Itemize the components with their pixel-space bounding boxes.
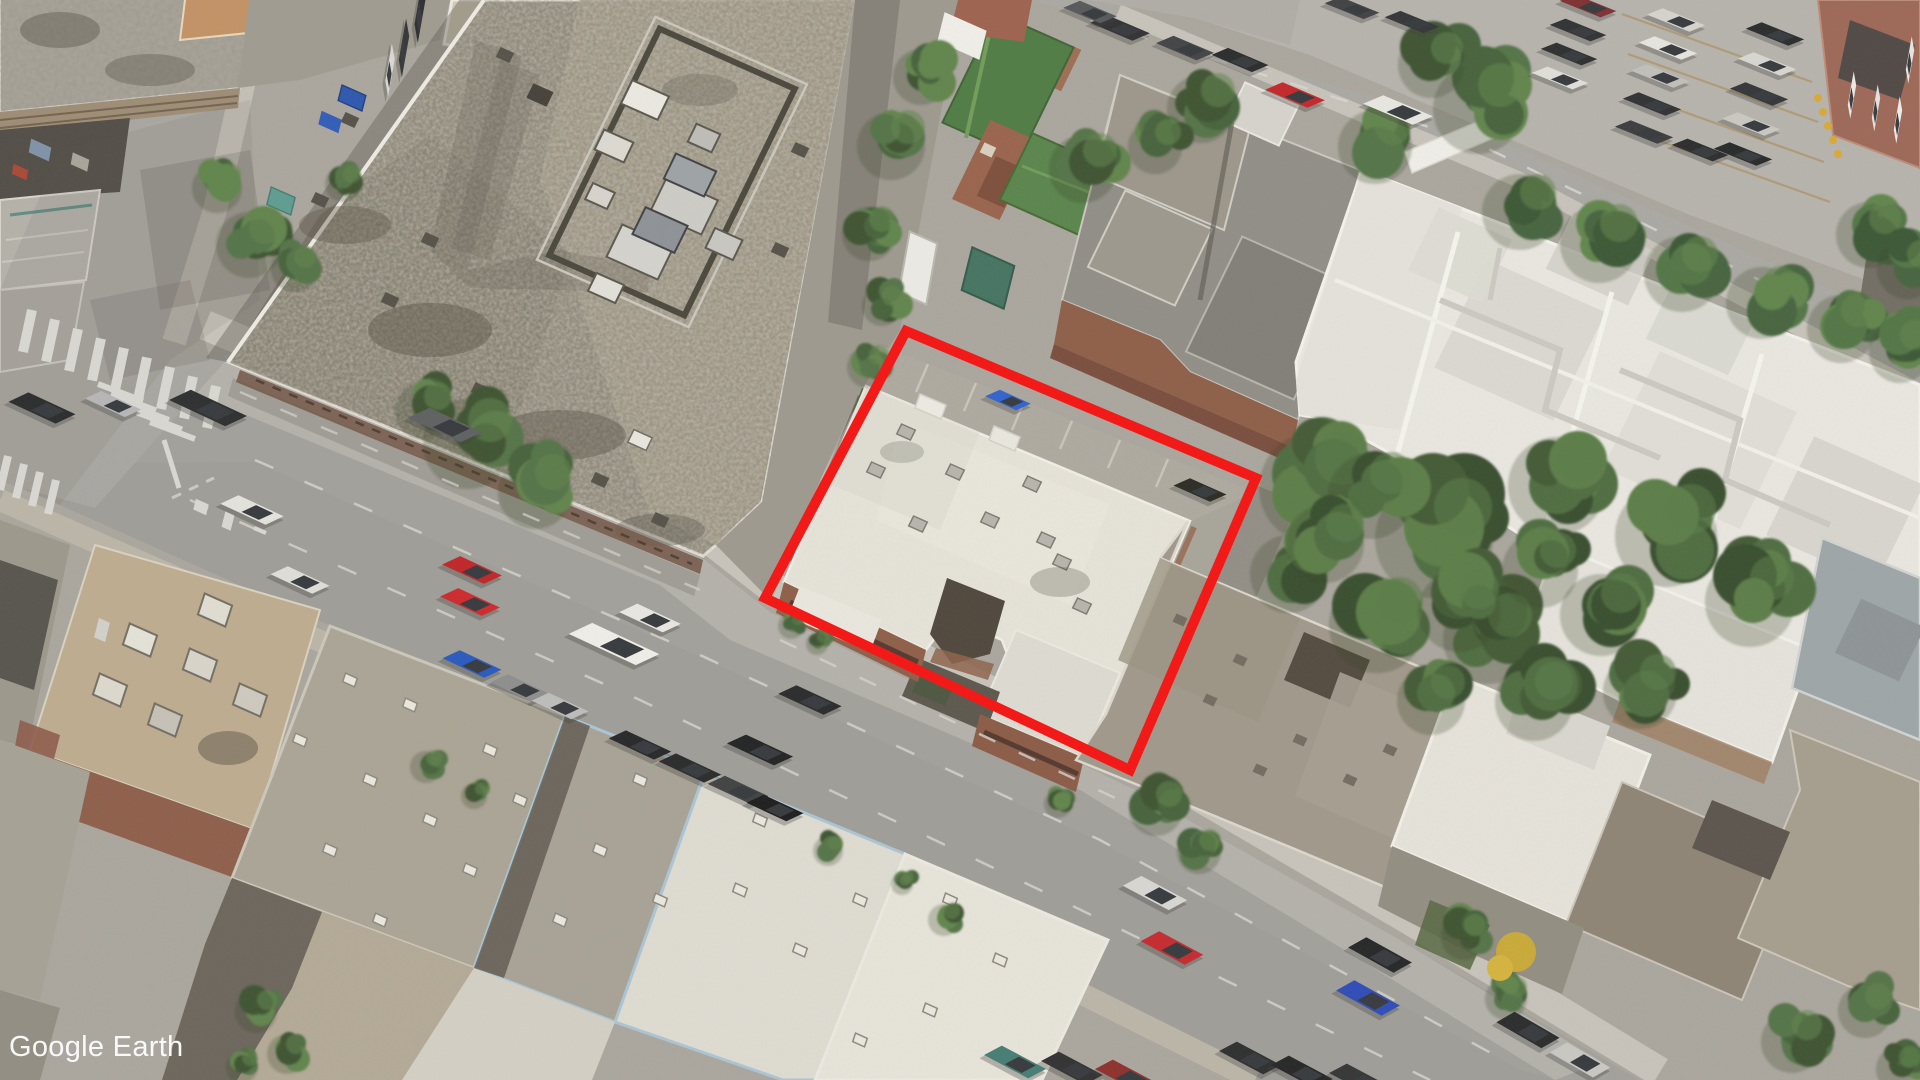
- svg-text:Google Earth: Google Earth: [9, 1031, 184, 1063]
